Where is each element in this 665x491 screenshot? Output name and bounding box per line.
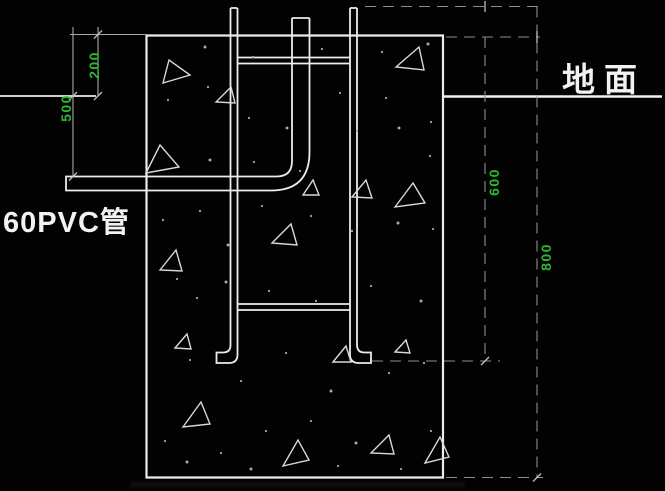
aggregate-triangle (216, 87, 235, 103)
pvc-pipe-label: 60PVC管 (3, 199, 130, 241)
aggregate-speckle (310, 215, 312, 217)
aggregate-speckle (167, 99, 169, 101)
aggregate-triangle (175, 334, 191, 349)
aggregate-triangle (371, 435, 394, 454)
aggregate-speckle (398, 127, 401, 130)
aggregate-speckle (397, 222, 400, 225)
aggregate-speckle (430, 121, 432, 123)
bottom-edge-reflection (130, 483, 465, 486)
cad-drawing-canvas: 地面 60PVC管 200 500 600 800 (0, 0, 665, 491)
aggregate-speckle (250, 468, 253, 471)
aggregate-speckle (388, 372, 390, 374)
aggregate-triangle (146, 145, 179, 173)
aggregate-triangle (160, 250, 182, 271)
aggregate-speckle (423, 362, 425, 364)
aggregate-speckle (430, 430, 432, 432)
aggregate-triangle (395, 183, 425, 207)
aggregate-speckle (315, 300, 317, 302)
aggregate-speckle (252, 56, 254, 58)
dim-200-label: 200 (86, 51, 102, 79)
aggregate-speckle (204, 46, 207, 49)
ground-surface-label: 地面 (562, 53, 646, 101)
dim-800-label: 800 (538, 243, 554, 271)
aggregate-triangle (395, 340, 410, 353)
aggregate-triangle (183, 402, 210, 427)
dimension-lines-right (365, 1, 543, 482)
aggregate-speckle (420, 300, 423, 303)
aggregate-triangle (283, 440, 309, 466)
aggregate-speckle (337, 465, 339, 467)
aggregate-speckle (310, 420, 312, 422)
aggregate-triangle (352, 180, 372, 198)
aggregate-speckle (164, 440, 166, 442)
aggregate-triangle (425, 437, 449, 463)
aggregate-speckle (248, 117, 250, 119)
aggregate-triangle (396, 47, 424, 70)
aggregate-speckle (227, 244, 230, 247)
aggregate-speckle (189, 359, 191, 361)
aggregate-speckle (220, 452, 222, 454)
dim-600-label: 600 (486, 168, 502, 196)
aggregate-speckle (339, 92, 341, 94)
aggregate-speckle (355, 442, 358, 445)
dim-500-label: 500 (58, 94, 74, 122)
aggregate-triangle (303, 180, 319, 195)
aggregate-speckle (196, 297, 198, 299)
aggregate-triangle (272, 224, 297, 245)
aggregate-speckle (162, 219, 164, 221)
pvc-conduit (66, 18, 310, 191)
aggregate-speckle (285, 352, 287, 354)
aggregate-speckle (253, 161, 255, 163)
aggregate-speckle (400, 468, 402, 470)
aggregate-speckle (286, 127, 289, 130)
aggregate-speckle (427, 43, 430, 46)
aggregate-triangles-and-speckles (146, 43, 449, 471)
aggregate-speckle (265, 430, 267, 432)
frame-pipe-left (217, 8, 238, 363)
aggregate-triangle (163, 60, 190, 83)
aggregate-speckle (432, 228, 434, 230)
aggregate-speckle (199, 210, 201, 212)
aggregate-speckle (299, 170, 301, 172)
dimension-lines-left (69, 27, 146, 181)
aggregate-speckle (240, 380, 242, 382)
aggregate-speckle (381, 51, 383, 53)
aggregate-speckle (429, 155, 431, 157)
aggregate-speckle (176, 278, 178, 280)
aggregate-triangle (333, 346, 351, 362)
aggregate-speckle (268, 290, 270, 292)
aggregate-speckle (370, 285, 372, 287)
aggregate-speckle (186, 461, 189, 464)
aggregate-speckle (225, 281, 228, 284)
aggregate-speckle (385, 97, 387, 99)
concrete-block-outline (147, 36, 444, 478)
aggregate-speckle (207, 86, 209, 88)
aggregate-speckle (209, 159, 212, 162)
aggregate-speckle (356, 130, 358, 132)
aggregate-speckle (351, 230, 353, 232)
aggregate-speckle (330, 390, 333, 393)
aggregate-speckle (321, 48, 323, 50)
frame-crossbars (238, 58, 351, 311)
aggregate-speckle (261, 205, 263, 207)
